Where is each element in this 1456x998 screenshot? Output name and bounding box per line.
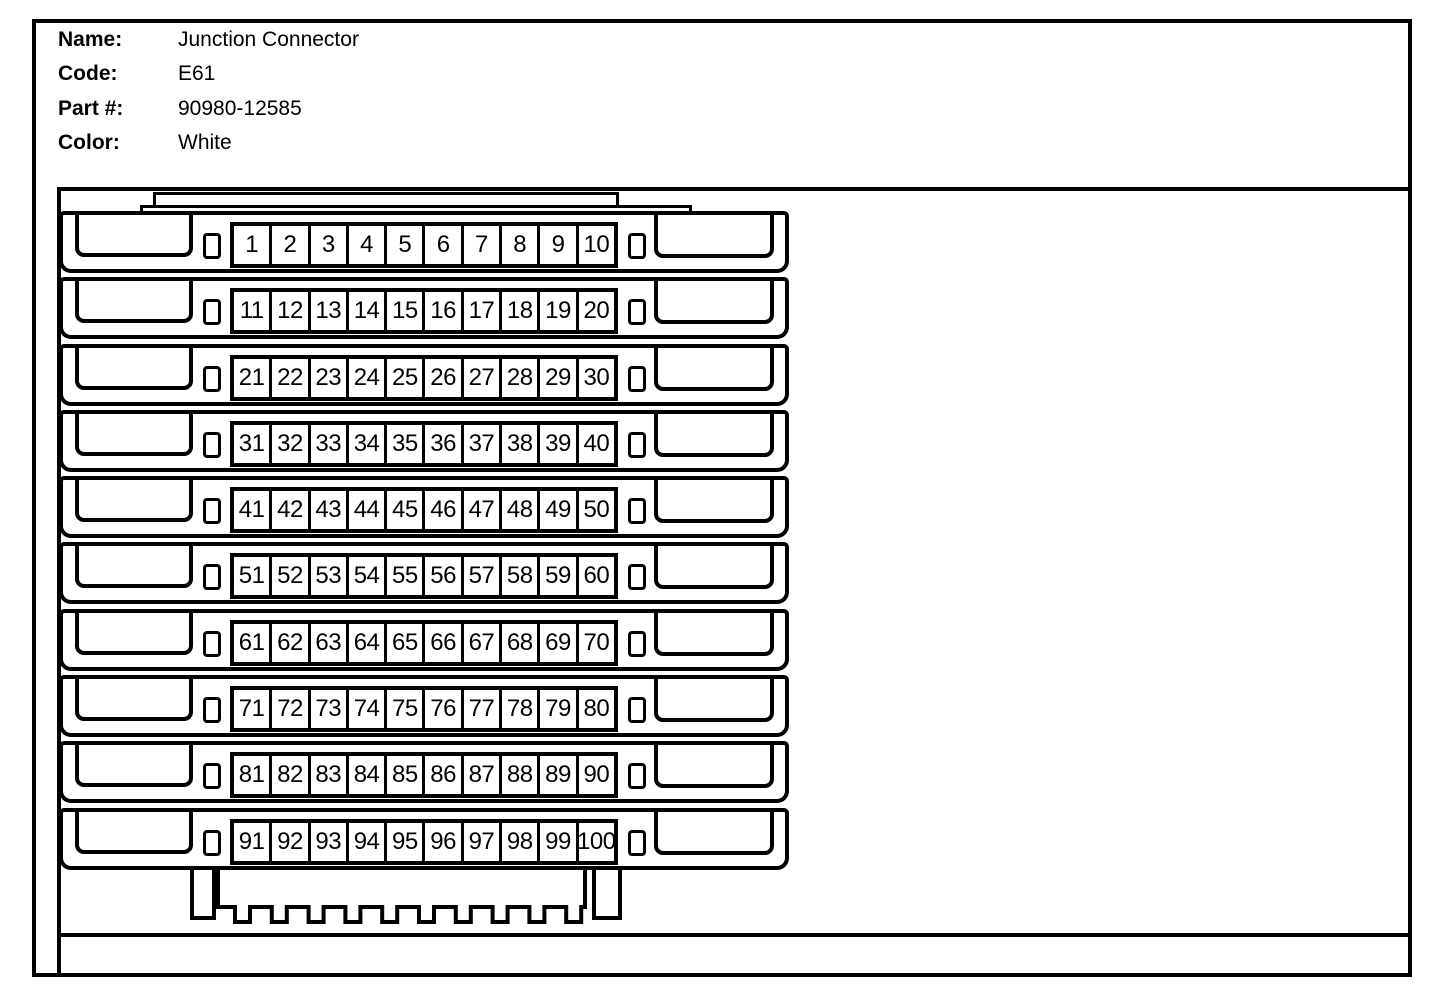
code-label: Code:: [58, 62, 178, 86]
pin-36: 36: [422, 425, 460, 463]
pin-75: 75: [384, 690, 422, 728]
bottom-latch-right: [592, 866, 622, 920]
side-tab-left: [75, 211, 193, 257]
pin-34: 34: [346, 425, 384, 463]
code-value: E61: [178, 62, 215, 86]
pin-66: 66: [422, 624, 460, 662]
pin-60: 60: [576, 557, 614, 595]
pin-67: 67: [461, 624, 499, 662]
pin-13: 13: [308, 292, 346, 330]
pin-16: 16: [422, 292, 460, 330]
pin-97: 97: [461, 823, 499, 861]
pin-89: 89: [537, 756, 575, 794]
pin-7: 7: [461, 226, 499, 264]
pin-24: 24: [346, 359, 384, 397]
guide-rib-right: [628, 763, 646, 789]
pin-81: 81: [234, 756, 269, 794]
pin-group-row-10: 919293949596979899100: [230, 819, 618, 865]
side-tab-right: [654, 476, 774, 523]
pin-94: 94: [346, 823, 384, 861]
pin-71: 71: [234, 690, 269, 728]
pin-18: 18: [499, 292, 537, 330]
pin-78: 78: [499, 690, 537, 728]
pin-50: 50: [576, 491, 614, 529]
pin-21: 21: [234, 359, 269, 397]
side-tab-right: [654, 344, 774, 391]
connector-row-5: 41424344454647484950: [59, 476, 789, 538]
pin-65: 65: [384, 624, 422, 662]
header-field-name: Name: Junction Connector: [58, 28, 658, 62]
connector-row-1: 12345678910: [59, 211, 789, 273]
pin-group-row-8: 71727374757677787980: [230, 686, 618, 732]
side-tab-left: [75, 410, 193, 456]
pin-64: 64: [346, 624, 384, 662]
pin-76: 76: [422, 690, 460, 728]
side-tab-right: [654, 609, 774, 656]
pin-group-row-9: 81828384858687888990: [230, 752, 618, 798]
pin-93: 93: [308, 823, 346, 861]
pin-91: 91: [234, 823, 269, 861]
part-number-label: Part #:: [58, 97, 178, 121]
pin-82: 82: [269, 756, 307, 794]
pin-49: 49: [537, 491, 575, 529]
guide-rib-left: [203, 299, 221, 325]
pin-62: 62: [269, 624, 307, 662]
pin-6: 6: [422, 226, 460, 264]
connector-row-3: 21222324252627282930: [59, 344, 789, 406]
guide-rib-right: [628, 498, 646, 524]
pin-51: 51: [234, 557, 269, 595]
pin-group-row-6: 51525354555657585960: [230, 553, 618, 599]
pin-84: 84: [346, 756, 384, 794]
guide-rib-left: [203, 498, 221, 524]
guide-rib-right: [628, 697, 646, 723]
side-tab-left: [75, 542, 193, 588]
header-block: Name: Junction Connector Code: E61 Part …: [58, 28, 658, 166]
connector-row-2: 11121314151617181920: [59, 277, 789, 339]
part-number-value: 90980-12585: [178, 97, 302, 121]
pin-88: 88: [499, 756, 537, 794]
connector-row-4: 31323334353637383940: [59, 410, 789, 472]
pin-80: 80: [576, 690, 614, 728]
side-tab-left: [75, 609, 193, 655]
pin-29: 29: [537, 359, 575, 397]
pin-37: 37: [461, 425, 499, 463]
strain-relief-comb: [216, 866, 589, 926]
guide-rib-left: [203, 830, 221, 856]
guide-rib-left: [203, 233, 221, 259]
pin-39: 39: [537, 425, 575, 463]
pin-5: 5: [384, 226, 422, 264]
pin-54: 54: [346, 557, 384, 595]
pin-83: 83: [308, 756, 346, 794]
pin-99: 99: [537, 823, 575, 861]
side-tab-right: [654, 741, 774, 788]
pin-53: 53: [308, 557, 346, 595]
side-tab-left: [75, 476, 193, 522]
pin-10: 10: [576, 226, 614, 264]
guide-rib-right: [628, 432, 646, 458]
pin-47: 47: [461, 491, 499, 529]
pin-1: 1: [234, 226, 269, 264]
pin-79: 79: [537, 690, 575, 728]
pin-40: 40: [576, 425, 614, 463]
pin-90: 90: [576, 756, 614, 794]
pin-25: 25: [384, 359, 422, 397]
name-label: Name:: [58, 28, 178, 52]
pin-44: 44: [346, 491, 384, 529]
connector-row-7: 61626364656667686970: [59, 609, 789, 671]
pin-87: 87: [461, 756, 499, 794]
pin-68: 68: [499, 624, 537, 662]
pin-41: 41: [234, 491, 269, 529]
pin-86: 86: [422, 756, 460, 794]
guide-rib-right: [628, 233, 646, 259]
guide-rib-left: [203, 631, 221, 657]
header-field-code: Code: E61: [58, 62, 658, 96]
side-tab-left: [75, 675, 193, 721]
pin-group-row-7: 61626364656667686970: [230, 620, 618, 666]
pin-30: 30: [576, 359, 614, 397]
pin-32: 32: [269, 425, 307, 463]
header-field-part-number: Part #: 90980-12585: [58, 97, 658, 131]
side-tab-left: [75, 741, 193, 787]
pin-3: 3: [308, 226, 346, 264]
pin-46: 46: [422, 491, 460, 529]
side-tab-right: [654, 808, 774, 855]
connector-row-8: 71727374757677787980: [59, 675, 789, 737]
pin-61: 61: [234, 624, 269, 662]
pin-20: 20: [576, 292, 614, 330]
name-value: Junction Connector: [178, 28, 359, 52]
color-value: White: [178, 131, 232, 155]
side-tab-right: [654, 277, 774, 324]
side-tab-left: [75, 808, 193, 854]
pin-23: 23: [308, 359, 346, 397]
guide-rib-left: [203, 366, 221, 392]
side-tab-right: [654, 542, 774, 589]
pin-8: 8: [499, 226, 537, 264]
pin-38: 38: [499, 425, 537, 463]
pin-72: 72: [269, 690, 307, 728]
pin-19: 19: [537, 292, 575, 330]
pin-group-row-3: 21222324252627282930: [230, 355, 618, 401]
bottom-latch-left: [190, 866, 216, 920]
pin-group-row-1: 12345678910: [230, 222, 618, 268]
pin-33: 33: [308, 425, 346, 463]
connector-row-6: 51525354555657585960: [59, 542, 789, 604]
pin-group-row-5: 41424344454647484950: [230, 487, 618, 533]
guide-rib-right: [628, 830, 646, 856]
pin-group-row-2: 11121314151617181920: [230, 288, 618, 334]
pin-42: 42: [269, 491, 307, 529]
guide-rib-left: [203, 763, 221, 789]
side-tab-right: [654, 675, 774, 722]
pin-31: 31: [234, 425, 269, 463]
pin-4: 4: [346, 226, 384, 264]
pin-100: 100: [576, 823, 614, 861]
frame-bottom-rule: [61, 933, 1408, 937]
pin-28: 28: [499, 359, 537, 397]
pin-73: 73: [308, 690, 346, 728]
color-label: Color:: [58, 131, 178, 155]
pin-48: 48: [499, 491, 537, 529]
pin-57: 57: [461, 557, 499, 595]
pin-14: 14: [346, 292, 384, 330]
pin-17: 17: [461, 292, 499, 330]
pin-70: 70: [576, 624, 614, 662]
pin-27: 27: [461, 359, 499, 397]
pin-96: 96: [422, 823, 460, 861]
pin-43: 43: [308, 491, 346, 529]
guide-rib-right: [628, 564, 646, 590]
pin-85: 85: [384, 756, 422, 794]
connector-rows: 12345678910 11121314151617181920 2122232…: [59, 211, 789, 874]
pin-59: 59: [537, 557, 575, 595]
header-field-color: Color: White: [58, 131, 658, 165]
pin-52: 52: [269, 557, 307, 595]
connector-row-9: 81828384858687888990: [59, 741, 789, 803]
side-tab-right: [654, 410, 774, 457]
pin-45: 45: [384, 491, 422, 529]
guide-rib-right: [628, 366, 646, 392]
pin-56: 56: [422, 557, 460, 595]
pin-11: 11: [234, 292, 269, 330]
pin-35: 35: [384, 425, 422, 463]
pin-2: 2: [269, 226, 307, 264]
pin-15: 15: [384, 292, 422, 330]
pin-63: 63: [308, 624, 346, 662]
pin-group-row-4: 31323334353637383940: [230, 421, 618, 467]
side-tab-right: [654, 211, 774, 258]
connector-pinout-page: Name: Junction Connector Code: E61 Part …: [0, 0, 1456, 998]
connector-row-10: 919293949596979899100: [59, 808, 789, 870]
pin-26: 26: [422, 359, 460, 397]
pin-69: 69: [537, 624, 575, 662]
pin-95: 95: [384, 823, 422, 861]
pin-74: 74: [346, 690, 384, 728]
side-tab-left: [75, 344, 193, 390]
pin-58: 58: [499, 557, 537, 595]
pin-9: 9: [537, 226, 575, 264]
guide-rib-left: [203, 432, 221, 458]
side-tab-left: [75, 277, 193, 323]
pin-12: 12: [269, 292, 307, 330]
pin-55: 55: [384, 557, 422, 595]
guide-rib-right: [628, 299, 646, 325]
guide-rib-left: [203, 697, 221, 723]
pin-77: 77: [461, 690, 499, 728]
pin-92: 92: [269, 823, 307, 861]
pin-22: 22: [269, 359, 307, 397]
pin-98: 98: [499, 823, 537, 861]
guide-rib-right: [628, 631, 646, 657]
guide-rib-left: [203, 564, 221, 590]
